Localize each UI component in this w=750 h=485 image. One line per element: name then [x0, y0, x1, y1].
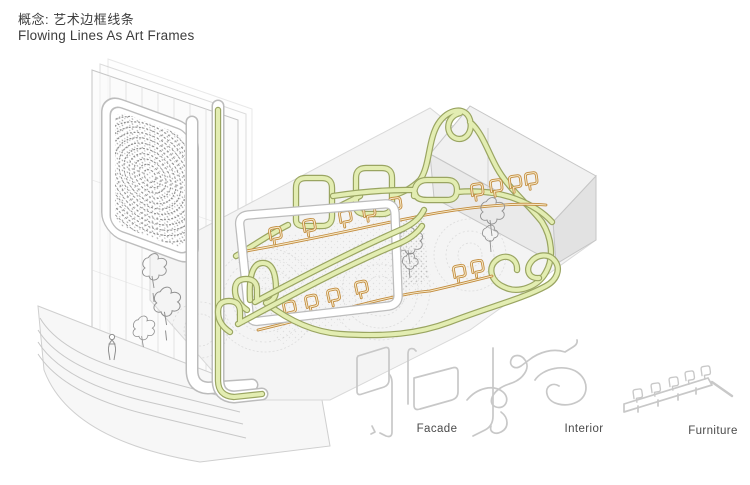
- legend-interior-icon: [467, 340, 586, 436]
- concept-board: 概念: 艺术边框线条 Flowing Lines As Art Frames: [0, 0, 750, 485]
- legend-label-facade: Facade: [417, 423, 458, 435]
- axonometric-concept-drawing: Facade Interior Furniture: [0, 0, 750, 485]
- legend-furniture-icon: [624, 366, 732, 412]
- legend-label-interior: Interior: [565, 423, 604, 435]
- legend-label-furniture: Furniture: [688, 425, 738, 437]
